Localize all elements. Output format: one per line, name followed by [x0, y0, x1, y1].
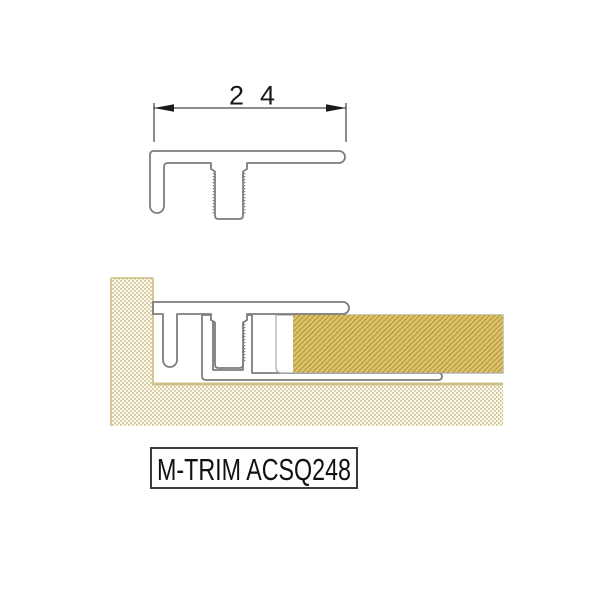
flooring-panel-hatch: [293, 315, 503, 373]
dimension-value: 24: [229, 81, 275, 111]
trim-profile-top-view: [150, 151, 345, 219]
arrowhead-right-icon: [326, 104, 346, 112]
dimension-group: [154, 103, 346, 142]
arrowhead-left-icon: [154, 104, 174, 112]
diagram-canvas: 24 M-TRIM ACSQ248: [0, 0, 600, 600]
subfloor-section: [111, 385, 503, 426]
product-label-text: M-TRIM ACSQ248: [157, 452, 351, 487]
trim-profile-diagram: 24 M-TRIM ACSQ248: [0, 0, 600, 600]
